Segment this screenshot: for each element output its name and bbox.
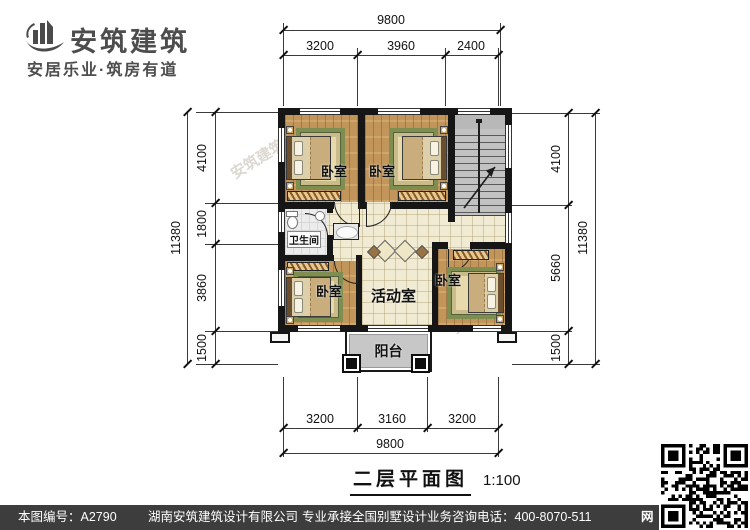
qr-code [659,442,750,530]
extension-line [196,112,278,113]
dim-left-total: 11380 [169,213,183,263]
floor-plan: 卧室 卧室 卫生间 卧室 活动室 卧室 [278,108,512,332]
window [300,108,340,115]
room-label-bathroom: 卫生间 [287,231,321,248]
wardrobe [398,191,446,201]
nightstand [496,263,504,271]
dim-left-seg: 1800 [195,200,209,248]
window [298,325,340,332]
dim-bottom-total: 9800 [368,437,412,451]
window [458,108,490,115]
extension-line [357,377,358,432]
room-label-activity: 活动室 [371,285,416,306]
nightstand [286,126,294,134]
balcony-column [344,356,359,371]
dim-bottom-seg: 3200 [298,412,342,426]
drawing-number: 本图编号：A2790 [18,505,117,530]
room-label-bedroom-c: 卧室 [316,281,342,300]
dim-left-seg: 4100 [195,134,209,182]
extension-line [512,113,600,114]
window [278,212,285,232]
stair-rail-cap [476,119,482,123]
interior-wall [327,209,333,213]
sink [315,211,325,221]
corner-pilaster [270,332,290,343]
company-logo-icon [20,14,70,56]
chair [415,245,429,259]
footer-service: 专业承接全国别墅设计业务 [302,505,452,530]
company-tagline: 安居乐业·筑房有道 [27,56,178,80]
nightstand [496,315,504,323]
drawing-scale: 1:100 [483,472,521,489]
footer-bar: 本图编号：A2790 湖南安筑建筑设计有限公司 专业承接全国别墅设计业务 咨询电… [0,505,750,530]
door-arc-bedroom-b [366,202,392,227]
dimension-line [187,112,188,364]
dimension-line [283,428,498,429]
dim-bottom-seg: 3160 [370,412,414,426]
dim-right-seg: 5660 [549,244,563,292]
stair-landing-line [455,215,505,216]
wardrobe [287,191,341,201]
bed [402,136,447,180]
balcony-slider-door [368,325,428,332]
interior-wall [285,202,334,209]
interior-wall [390,202,455,209]
stairs-direction-arrow [455,153,505,215]
footer-company: 湖南安筑建筑设计有限公司 [148,505,298,530]
wardrobe [453,250,489,260]
corner-pilaster [497,332,517,343]
interior-wall [358,115,365,202]
window [378,108,420,115]
dimension-line [595,113,596,364]
interior-wall [432,242,448,249]
room-label-bedroom-a: 卧室 [321,161,347,180]
dim-left-seg: 3860 [195,264,209,312]
nightstand [286,182,294,190]
bed [468,273,504,313]
dim-top-total: 9800 [369,13,413,27]
dimension-line [283,55,498,56]
dim-right-total: 11380 [576,213,590,263]
table [394,240,417,263]
window [473,325,501,332]
extension-line [357,48,358,106]
window [505,213,512,243]
dimension-tick [183,359,192,368]
window [278,270,285,306]
nightstand [286,316,294,324]
extension-line [283,23,284,106]
staircase [455,115,505,215]
footer-web-badge: 网 [641,505,654,530]
nightstand [286,267,294,275]
dim-top-seg: 3200 [298,39,342,53]
room-label-bedroom-b: 卧室 [369,161,395,180]
extension-line [445,48,446,106]
shower-mat-oval [336,226,358,239]
extension-line [512,205,572,206]
extension-line [498,377,499,457]
interior-wall [470,242,505,249]
extension-line [427,377,428,432]
extension-line [500,23,501,106]
dim-top-seg: 3960 [379,39,423,53]
dim-right-seg: 4100 [549,135,563,183]
interior-wall [285,255,334,261]
dim-left-seg: 1500 [195,324,209,372]
extension-line [498,48,499,106]
dim-right-seg: 1500 [549,324,563,372]
extension-line [512,331,572,332]
window [505,125,512,168]
page: 安筑建筑 安居乐业·筑房有道 安筑建筑com 安筑建筑 安筑建筑 [0,0,750,530]
drawing-title: 二层平面图 [350,469,471,496]
dim-bottom-seg: 3200 [440,412,484,426]
window [278,128,285,162]
nightstand [440,126,448,134]
dimension-line [215,112,216,364]
room-label-balcony: 阳台 [375,343,403,359]
balcony-column [413,356,428,371]
drawing-title-block: 二层平面图1:100 [350,464,521,491]
toilet-bowl [287,216,298,229]
dim-top-seg: 2400 [449,39,493,53]
dimension-line [283,30,500,31]
extension-line [283,377,284,457]
nightstand [440,182,448,190]
room-label-bedroom-d: 卧室 [435,270,461,289]
dimension-line [568,113,569,364]
company-name: 安筑建筑 [70,20,190,59]
dimension-line [283,453,498,454]
footer-phone: 咨询电话：400-8070-511 [452,505,591,530]
